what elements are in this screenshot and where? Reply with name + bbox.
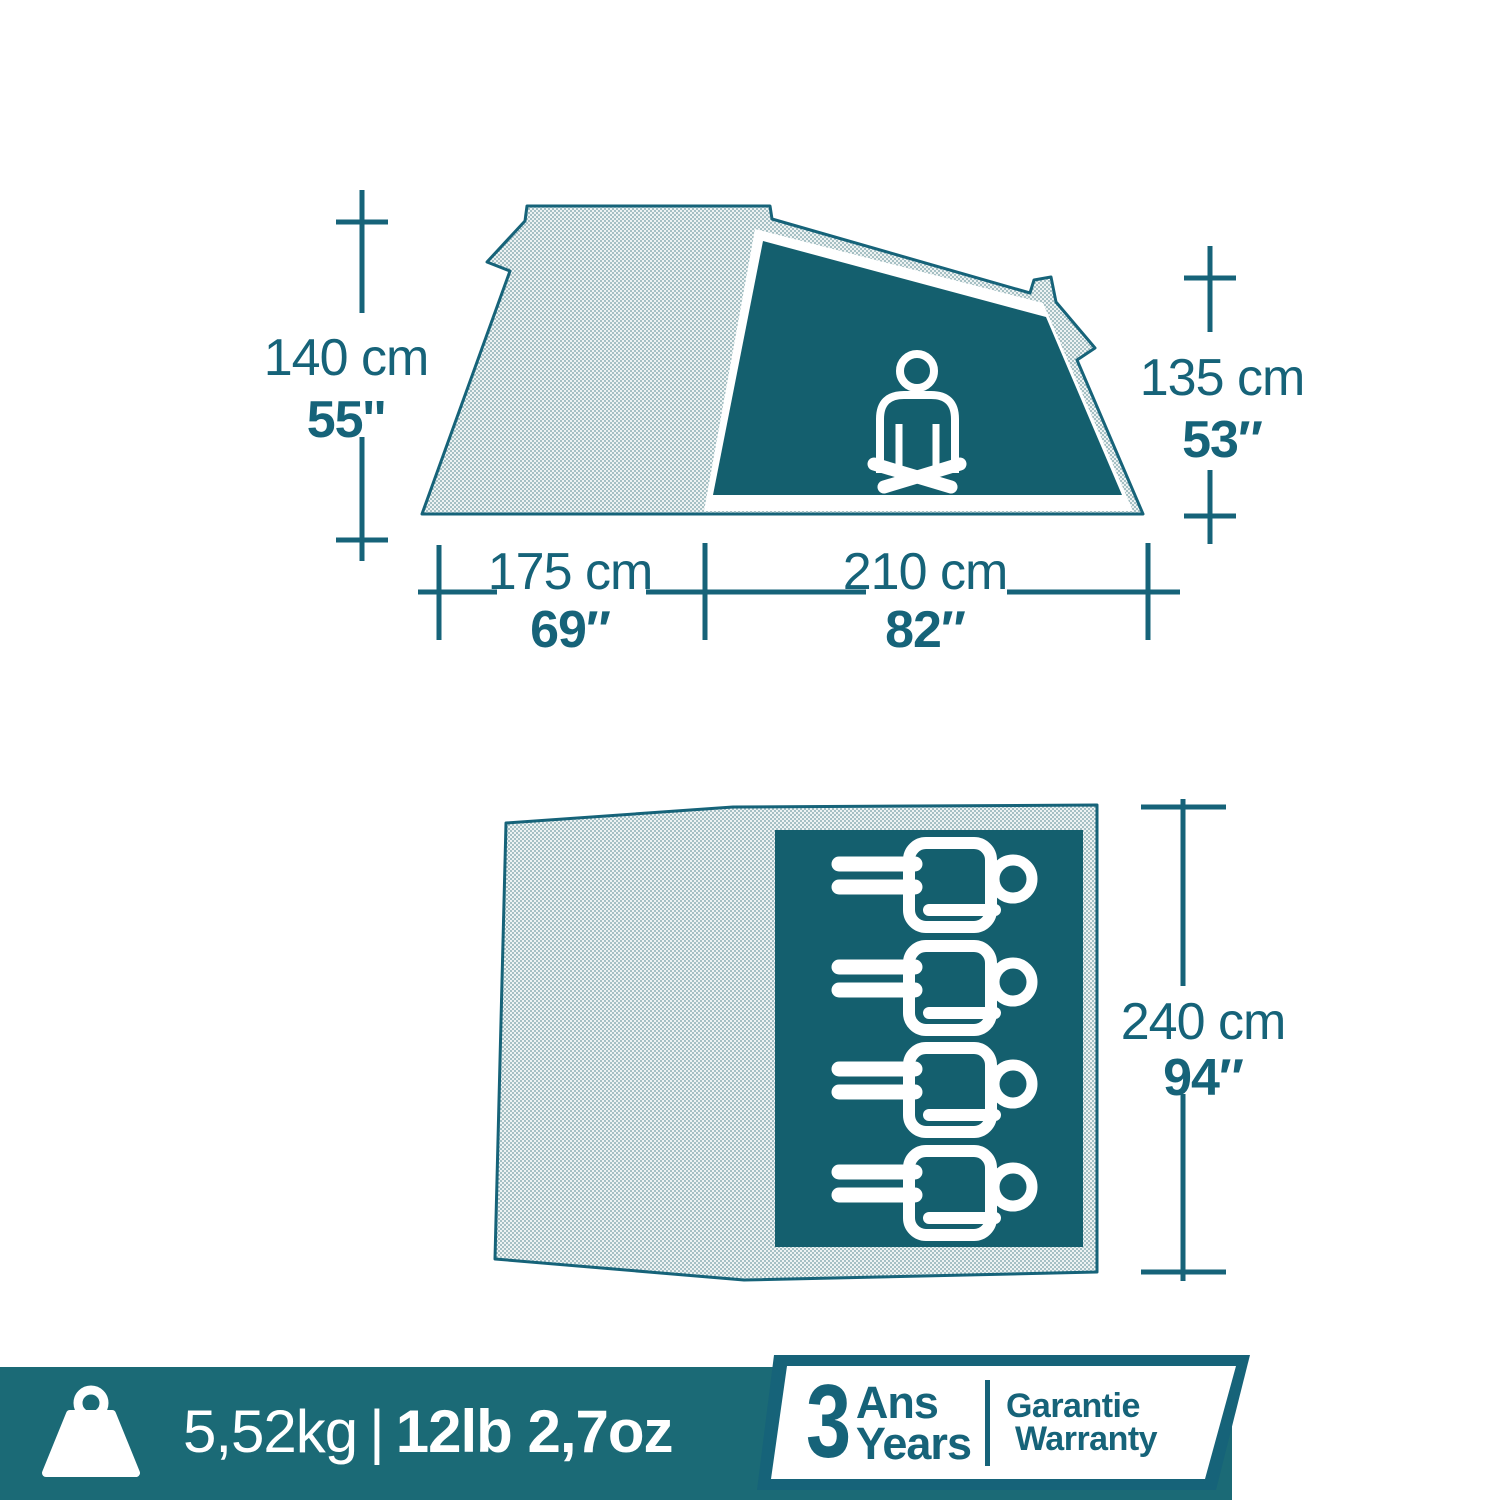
warranty-divider — [985, 1380, 990, 1466]
dimension-width-top-view: 240 cm 94″ — [1103, 996, 1303, 1104]
length-inner-cm-label: 210 cm — [825, 546, 1025, 598]
tent-dimensions-infographic: 140 cm 55'' 135 cm 53″ 175 cm 69″ 210 cm… — [0, 0, 1500, 1500]
weight-text: 5,52kg|12lb 2,7oz — [183, 1402, 673, 1462]
warranty-units: Ans Years — [856, 1382, 971, 1464]
diagram-artwork — [0, 0, 1500, 1500]
dimension-height-right: 135 cm 53″ — [1122, 352, 1322, 466]
warranty-years-number: 3 — [806, 1380, 851, 1465]
warranty-label-en: Warranty — [1006, 1423, 1157, 1456]
width-inch-label: 94″ — [1103, 1052, 1303, 1104]
tent-top-view-drawing — [495, 805, 1097, 1280]
warranty-unit-fr-label: Ans — [856, 1382, 971, 1423]
warranty-badge: 3 Ans Years Garantie Warranty — [806, 1372, 1157, 1474]
warranty-labels: Garantie Warranty — [1006, 1390, 1157, 1456]
warranty-label-fr: Garantie — [1006, 1390, 1157, 1423]
height-left-inch-label: 55'' — [246, 394, 446, 446]
height-right-inch-label: 53″ — [1122, 414, 1322, 466]
warranty-unit-en-label: Years — [856, 1423, 971, 1464]
length-front-cm-label: 175 cm — [470, 546, 670, 598]
dimension-height-left: 140 cm 55'' — [246, 332, 446, 446]
height-left-cm-label: 140 cm — [246, 332, 446, 384]
weight-metric-label: 5,52kg — [183, 1398, 357, 1465]
weight-separator: | — [369, 1398, 384, 1465]
width-cm-label: 240 cm — [1103, 996, 1303, 1048]
dimension-length-inner: 210 cm 82″ — [825, 546, 1025, 656]
dimension-length-front: 175 cm 69″ — [470, 546, 670, 656]
length-front-inch-label: 69″ — [470, 604, 670, 656]
tent-side-view-drawing — [422, 206, 1143, 514]
length-inner-inch-label: 82″ — [825, 604, 1025, 656]
weight-imperial-label: 12lb 2,7oz — [396, 1398, 673, 1465]
height-right-cm-label: 135 cm — [1122, 352, 1322, 404]
